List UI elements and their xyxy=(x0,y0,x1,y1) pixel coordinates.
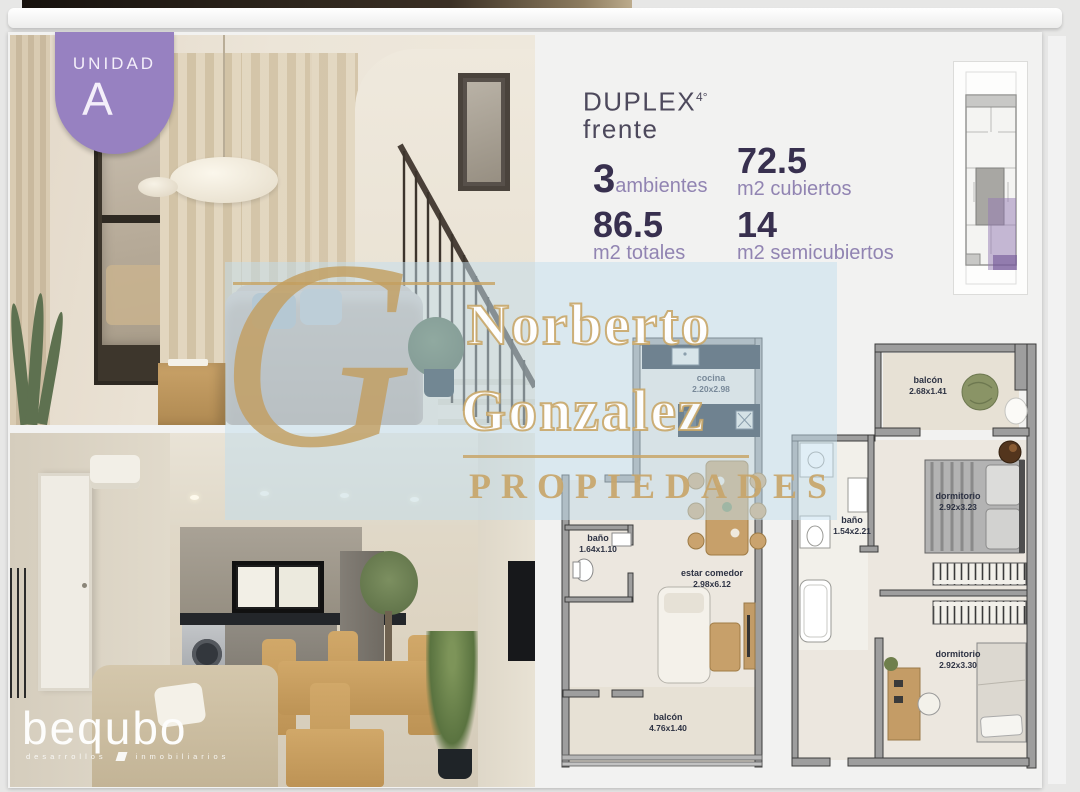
room-label-bano-lower: baño 1.64x1.10 xyxy=(553,533,643,555)
unit-badge-label: UNIDAD xyxy=(55,54,174,74)
tagline-word-1: desarrollos xyxy=(26,752,107,761)
stat-totales: 86.5 m2 totales xyxy=(593,208,685,264)
watermark-monogram: G xyxy=(219,220,414,490)
unit-type: DUPLEX xyxy=(583,87,696,117)
snake-plant xyxy=(426,631,478,759)
palm-plant xyxy=(360,551,418,615)
previous-sheet-edge xyxy=(22,0,632,8)
cube-mark-icon xyxy=(115,752,127,761)
stair-rail-glimpse xyxy=(10,568,30,698)
stat-ambientes: 3ambientes xyxy=(593,162,708,197)
room-label-estar-comedor: estar comedor 2.98x6.12 xyxy=(667,568,757,590)
watermark-name-line1: Norberto xyxy=(467,296,712,354)
key-plan-drawing xyxy=(954,62,1027,294)
stat-semicubiertos: 14 m2 semicubiertos xyxy=(737,208,894,264)
dining-table xyxy=(278,661,438,715)
snake-plant-pot xyxy=(438,749,472,779)
developer-logo-tagline: desarrollos inmobiliarios xyxy=(26,752,229,761)
right-margin-strip xyxy=(1048,36,1066,784)
room-label-dormitorio-2: dormitorio 2.92x3.30 xyxy=(913,649,1003,671)
kitchen-window-pane-2 xyxy=(279,567,318,607)
unit-title: DUPLEX4° frente xyxy=(583,84,708,143)
ac-unit xyxy=(90,455,140,489)
stat-semicubiertos-value: 14 xyxy=(737,208,894,242)
pendant-lamp xyxy=(170,157,278,203)
entry-door xyxy=(38,473,92,691)
brochure-canvas: UNIDAD A DUPLEX4° frente 3ambientes 72.5… xyxy=(0,0,1080,792)
developer-logo-name: bequbo xyxy=(22,704,229,752)
stat-cubiertos-value: 72.5 xyxy=(737,144,852,178)
unit-badge: UNIDAD A xyxy=(55,32,174,154)
room-label-balcon-upper: balcón 2.68x1.41 xyxy=(883,375,973,397)
door-knob xyxy=(82,583,87,588)
stat-cubiertos: 72.5 m2 cubiertos xyxy=(737,144,852,200)
pendant-cord xyxy=(223,35,225,159)
watermark-name-line2: Gonzalez xyxy=(461,382,706,440)
spotlight xyxy=(190,495,199,500)
stat-totales-value: 86.5 xyxy=(593,208,685,242)
room-label-dormitorio-1: dormitorio 2.92x3.23 xyxy=(913,491,1003,513)
tagline-word-2: inmobiliarios xyxy=(136,752,230,761)
book xyxy=(168,359,208,366)
wood-side-table xyxy=(158,363,226,425)
sheet-divider-band xyxy=(8,8,1062,28)
brochure-page: UNIDAD A DUPLEX4° frente 3ambientes 72.5… xyxy=(8,32,1042,788)
room-label-balcon-lower: balcón 4.76x1.40 xyxy=(623,712,713,734)
stat-ambientes-value: 3 xyxy=(593,162,615,196)
unit-floor: 4° xyxy=(696,90,707,104)
unit-badge-letter: A xyxy=(55,76,140,122)
watermark-rule-bottom xyxy=(463,455,749,458)
stat-ambientes-label: ambientes xyxy=(615,175,707,197)
building-key-plan xyxy=(953,61,1028,295)
agency-watermark: G Norberto Gonzalez PROPIEDADES xyxy=(225,262,837,520)
coffee-table xyxy=(286,729,384,787)
kitchen-window-pane xyxy=(238,567,275,607)
stat-totales-label: m2 totales xyxy=(593,242,685,264)
unit-orientation: frente xyxy=(583,114,659,144)
stat-semicubiertos-label: m2 semicubiertos xyxy=(737,242,894,264)
developer-logo: bequbo desarrollos inmobiliarios xyxy=(22,704,229,761)
pendant-lamp-small xyxy=(138,177,178,197)
stat-cubiertos-label: m2 cubiertos xyxy=(737,178,852,200)
tv xyxy=(508,561,535,661)
watermark-subtitle: PROPIEDADES xyxy=(469,465,837,507)
